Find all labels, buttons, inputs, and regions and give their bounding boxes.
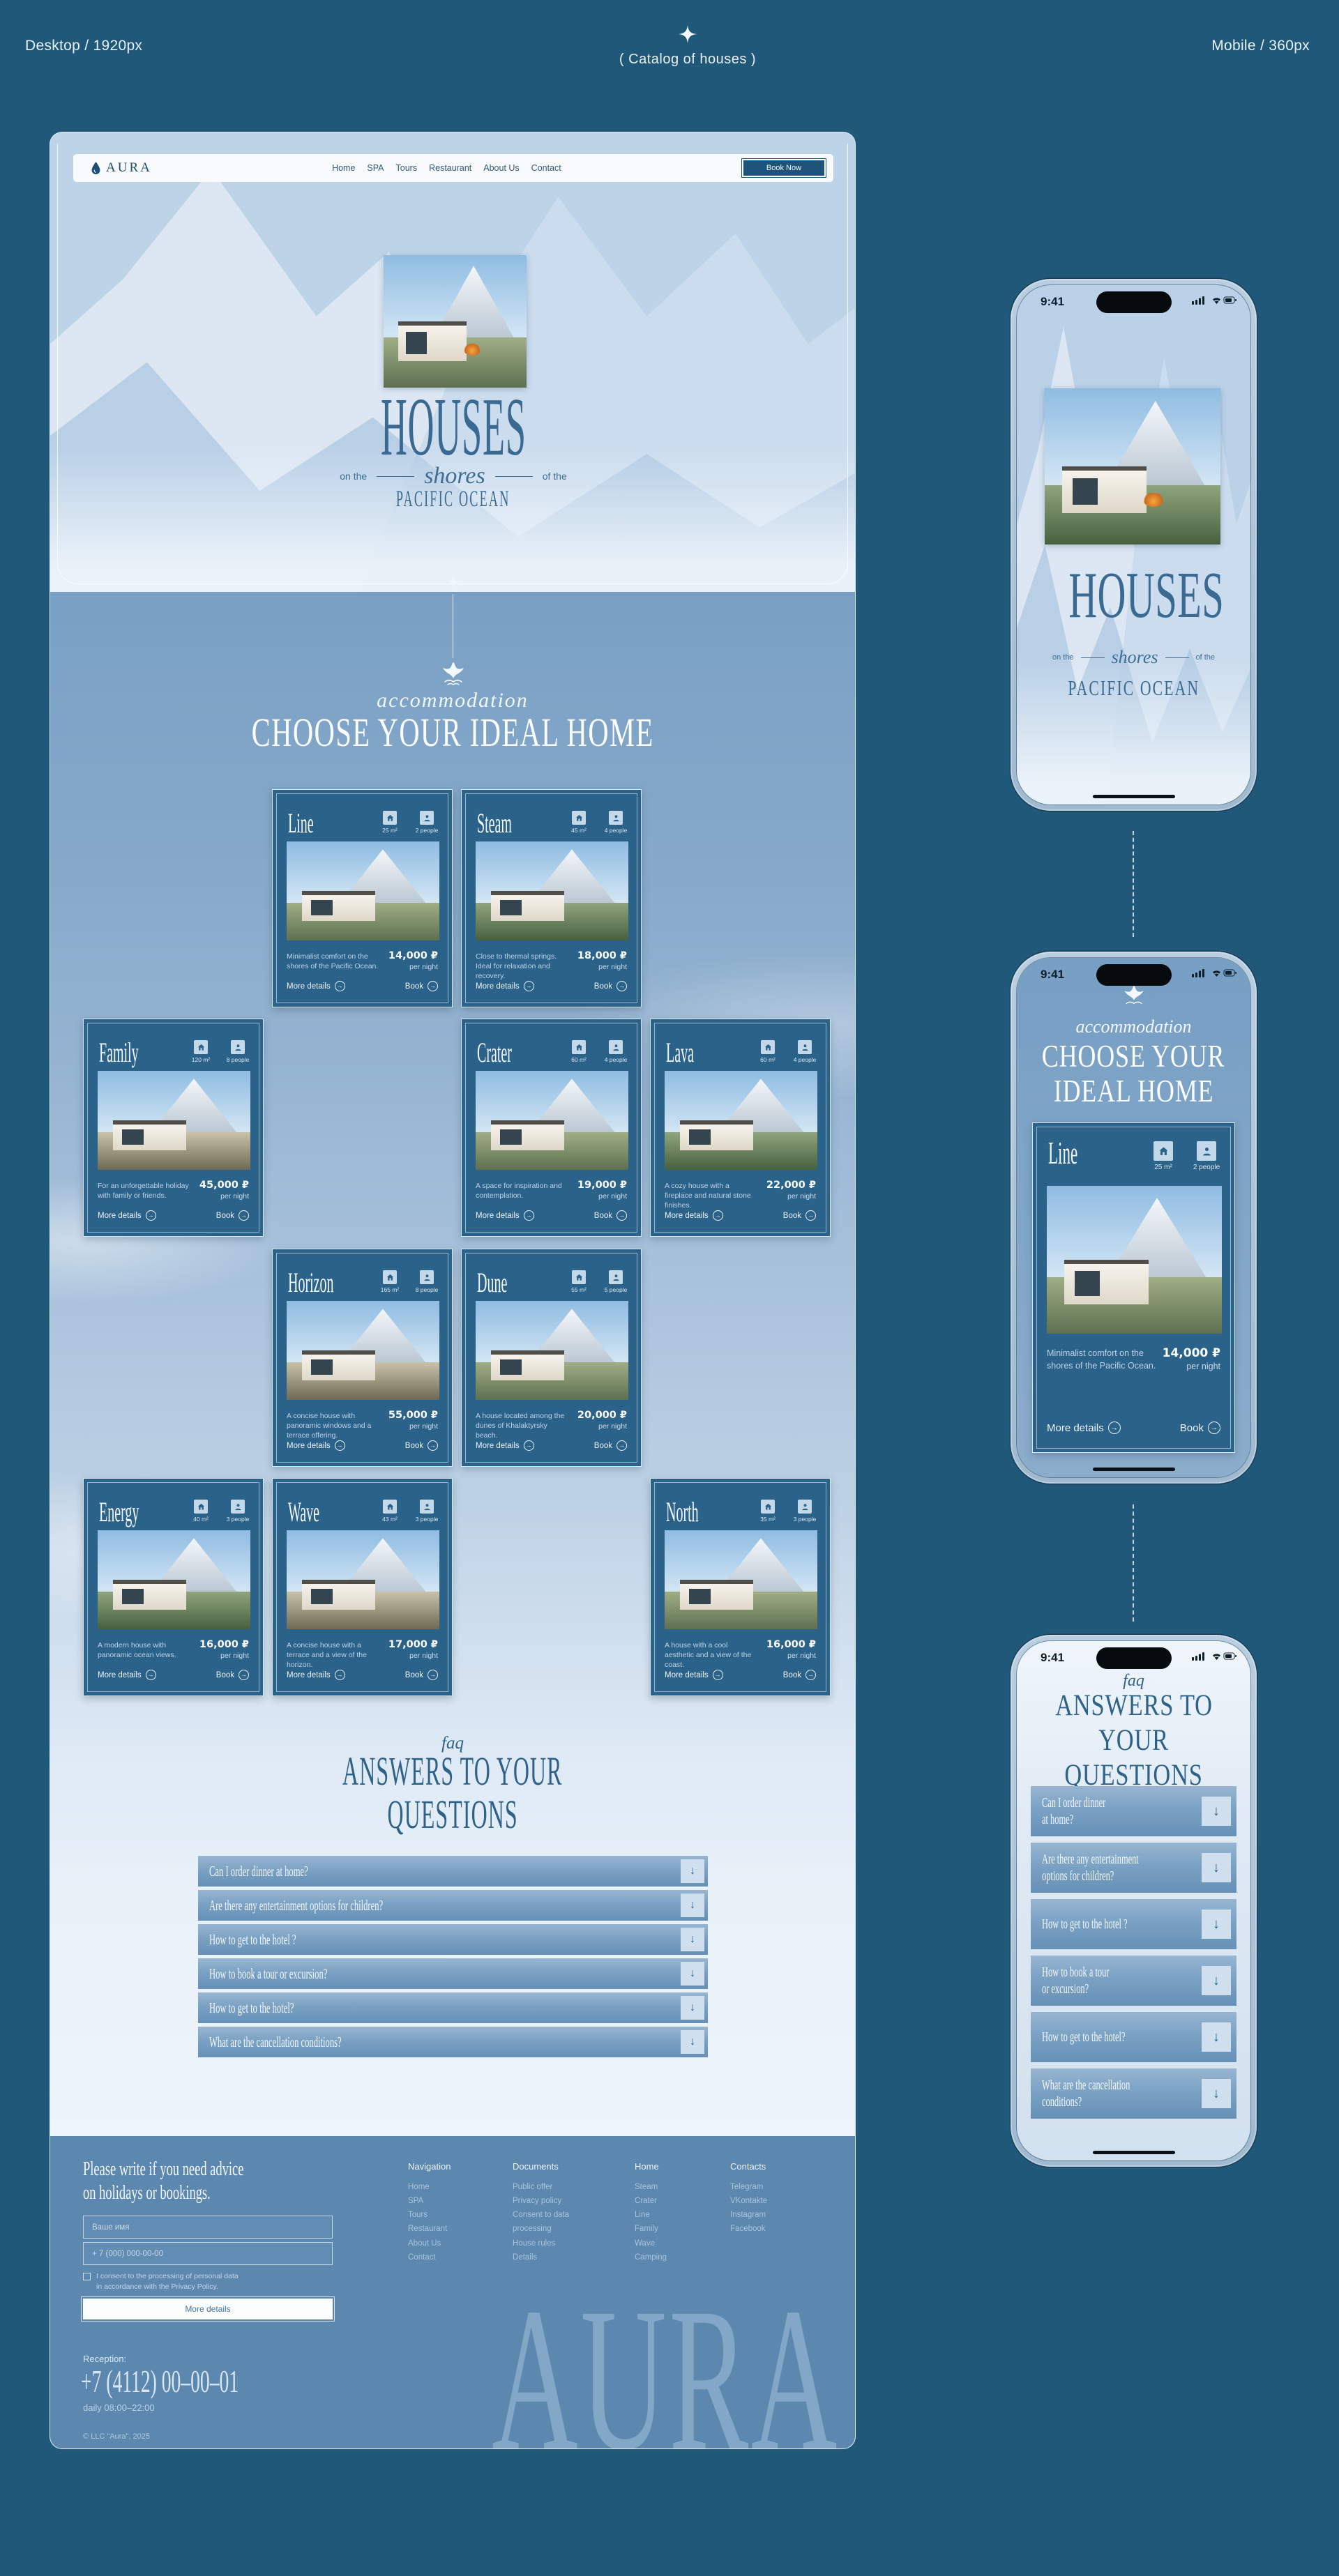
capacity-label: 3 people (411, 1516, 442, 1523)
accommodation-heading-line1: CHOOSE YOUR (1042, 1039, 1225, 1074)
footer-link-about-us[interactable]: About Us (408, 2236, 499, 2250)
faq-heading-line2: YOUR QUESTIONS (1041, 1723, 1227, 1793)
consent-line1: I consent to the processing of personal … (96, 2272, 239, 2280)
faq-question-text: Can I order dinnerat home? (1042, 1794, 1105, 1828)
accommodation-heading-line2: IDEAL HOME (1054, 1074, 1214, 1108)
name-input[interactable] (83, 2216, 333, 2239)
price-period: per night (388, 1422, 438, 1431)
arrow-circle-icon: → (146, 1670, 156, 1680)
footer-link-line[interactable]: Line (635, 2208, 725, 2222)
main-nav: HomeSPAToursRestaurantAbout UsContact (152, 163, 741, 173)
price-value: 45,000 ₽ (199, 1180, 249, 1191)
faq-item[interactable]: What are the cancellation conditions?↓ (198, 2027, 708, 2057)
watermark-text: AURA (492, 2276, 840, 2449)
house-name-text: Steam (477, 809, 512, 837)
house-name-text: Line (1048, 1137, 1077, 1169)
house-icon (761, 1040, 775, 1054)
hero-title: HOUSES (50, 386, 856, 468)
more-details-link[interactable]: More details→ (287, 981, 345, 991)
dynamic-island (1096, 1647, 1172, 1669)
footer-submit-button[interactable]: More details (83, 2299, 333, 2319)
more-details-link[interactable]: More details→ (98, 1670, 156, 1680)
footer-link-house-rules[interactable]: House rules (513, 2236, 603, 2250)
footer-link-public-offer[interactable]: Public offer (513, 2180, 603, 2194)
capacity-badge: 2 people (411, 811, 442, 834)
footer-link-facebook[interactable]: Facebook (730, 2222, 821, 2236)
house-icon (575, 1273, 584, 1282)
faq-expand-button[interactable]: ↓ (681, 1962, 704, 1986)
faq-expand-button[interactable]: ↓ (1202, 1797, 1231, 1826)
more-details-link[interactable]: More details→ (476, 981, 534, 991)
footer-link-camping[interactable]: Camping (635, 2250, 725, 2264)
book-link[interactable]: Book→ (405, 1670, 438, 1680)
arrow-down-icon: ↓ (1213, 1973, 1220, 1989)
price-block: 20,000 ₽per night (577, 1410, 627, 1431)
faq-question: How to get to the hotel? (1042, 2029, 1177, 2045)
house-name-text: Wave (288, 1498, 319, 1526)
nav-link-home[interactable]: Home (332, 163, 355, 173)
house-description: A cozy house with a fireplace and natura… (665, 1181, 757, 1211)
footer-link-wave[interactable]: Wave (635, 2236, 725, 2250)
reception-phone[interactable]: +7 (4112) 00–00–01 (81, 2364, 344, 2400)
footer-link-details[interactable]: Details (513, 2250, 603, 2264)
price-period: per night (577, 1192, 627, 1201)
footer-column-documents: DocumentsPublic offerPrivacy policyConse… (513, 2161, 603, 2264)
arrow-circle-icon: → (805, 1210, 816, 1221)
price-block: 22,000 ₽per night (766, 1180, 816, 1201)
price-period: per night (199, 1192, 249, 1201)
faq-item[interactable]: How to get to the hotel ?↓ (198, 1924, 708, 1955)
arrow-circle-icon: → (335, 981, 345, 991)
house-icon (383, 811, 397, 825)
photo-house (680, 1120, 753, 1150)
book-link[interactable]: Book→ (594, 981, 627, 991)
faq-item[interactable]: Are there any entertainmentoptions for c… (1031, 1843, 1236, 1893)
person-icon (423, 1273, 432, 1282)
faq-question: Are there any entertainmentoptions for c… (1042, 1851, 1198, 1884)
price-value: 14,000 ₽ (1163, 1346, 1220, 1360)
hero-photo (1045, 388, 1220, 544)
arrow-circle-icon: → (616, 1440, 627, 1451)
price-value: 22,000 ₽ (766, 1180, 816, 1191)
dash-ornament (377, 476, 414, 477)
nav-link-about-us[interactable]: About Us (483, 163, 519, 173)
hero-title-text: HOUSES (381, 386, 527, 468)
faq-item[interactable]: How to get to the hotel ?↓ (1031, 1899, 1236, 1949)
house-photo (287, 841, 439, 940)
hero-title-text: HOUSES (1068, 563, 1224, 628)
phone-mockup-hero: HOUSES on the shores of the PACIFIC OCEA… (1011, 279, 1257, 811)
more-details-link[interactable]: More details→ (98, 1210, 156, 1221)
price-period: per night (577, 963, 627, 971)
card-badges: 60 m²4 people (563, 1040, 631, 1063)
person-icon (798, 1500, 812, 1514)
price-block: 18,000 ₽per night (577, 950, 627, 971)
sparkle-icon (679, 24, 697, 45)
book-link[interactable]: Book→ (783, 1210, 816, 1221)
house-card-wave: Wave43 m²3 peopleA concise house with a … (272, 1478, 453, 1696)
faq-expand-button[interactable]: ↓ (681, 2030, 704, 2054)
site-header: AURA HomeSPAToursRestaurantAbout UsConta… (73, 154, 833, 182)
phone-input[interactable] (83, 2242, 333, 2265)
arrow-circle-icon: → (239, 1210, 249, 1221)
faq-expand-button[interactable]: ↓ (681, 1893, 704, 1917)
hero-sub-right: of the (1196, 653, 1216, 662)
phone-mockup-catalog: accommodation CHOOSE YOUR IDEAL HOME Lin… (1011, 952, 1257, 1484)
status-icons (1192, 968, 1236, 982)
house-name: Crater (477, 1039, 547, 1067)
status-time: 9:41 (1041, 968, 1064, 982)
hero-bottom-ornament (448, 576, 459, 592)
price-value: 16,000 ₽ (766, 1639, 816, 1650)
catalog-badge: ( Catalog of houses ) (618, 24, 757, 68)
status-bar: 9:41 (1017, 958, 1250, 990)
arrow-circle-icon: → (524, 1440, 534, 1451)
area-badge: 60 m² (563, 1040, 594, 1063)
house-name: Line (1048, 1137, 1107, 1169)
book-label: Book (1180, 1422, 1204, 1434)
more-details-label: More details (665, 1671, 709, 1679)
dynamic-island (1096, 291, 1172, 313)
arrow-circle-icon: → (616, 1210, 627, 1221)
arrow-down-icon: ↓ (1213, 2086, 1220, 2102)
house-description: A modern house with panoramic ocean view… (98, 1640, 190, 1660)
house-icon (764, 1043, 773, 1052)
photo-house (113, 1580, 186, 1610)
footer-link-contact[interactable]: Contact (408, 2250, 499, 2264)
footer-column-contacts: ContactsTelegramVKontakteInstagramFacebo… (730, 2161, 821, 2236)
area-label: 120 m² (186, 1056, 216, 1063)
faq-item[interactable]: Can I order dinnerat home?↓ (1031, 1786, 1236, 1836)
faq-question: How to book a touror excursion? (1042, 1964, 1151, 1997)
accommodation-heading: CHOOSE YOUR IDEAL HOME (50, 712, 855, 753)
book-label: Book (783, 1212, 801, 1220)
arrow-circle-icon: → (428, 1670, 438, 1680)
faq-expand-button[interactable]: ↓ (681, 1859, 704, 1883)
footer-column-title: Navigation (408, 2161, 499, 2172)
nav-link-restaurant[interactable]: Restaurant (429, 163, 471, 173)
capacity-badge: 3 people (222, 1500, 253, 1523)
phone-screen: faq ANSWERS TO YOUR QUESTIONS Can I orde… (1017, 1641, 1250, 2160)
book-link[interactable]: Book→ (594, 1440, 627, 1451)
price-block: 17,000 ₽per night (388, 1639, 438, 1660)
footer-link-telegram[interactable]: Telegram (730, 2180, 821, 2194)
person-icon (609, 1040, 623, 1054)
desktop-size-label: Desktop / 1920px (25, 38, 142, 54)
capacity-badge: 4 people (600, 811, 631, 834)
faq-item[interactable]: What are the cancellationconditions?↓ (1031, 2068, 1236, 2119)
mobile-size-label: Mobile / 360px (1211, 38, 1310, 54)
faq-question: How to get to the hotel ? (209, 1933, 354, 1947)
faq-expand-button[interactable]: ↓ (681, 1996, 704, 2020)
house-card-lava: Lava60 m²4 peopleA cozy house with a fir… (650, 1019, 831, 1237)
faq-question: How to get to the hotel? (209, 2001, 350, 2015)
faq-question: Can I order dinnerat home? (1042, 1794, 1144, 1828)
reception-phone-text: +7 (4112) 00–00–01 (81, 2364, 239, 2400)
book-label: Book (405, 982, 423, 991)
status-bar: 9:41 (1017, 1641, 1250, 1673)
copyright: © LLC "Aura", 2025 (83, 2432, 150, 2441)
desktop-mockup: HOUSES on the shores of the PACIFIC OCEA… (50, 132, 856, 2449)
arrow-down-icon: ↓ (1213, 1804, 1220, 1820)
house-description: A concise house with a terrace and a vie… (287, 1640, 379, 1670)
footer-link-instagram[interactable]: Instagram (730, 2208, 821, 2222)
house-photo (287, 1530, 439, 1629)
faq-item[interactable]: Are there any entertainment options for … (198, 1890, 708, 1921)
nav-link-tours[interactable]: Tours (396, 163, 418, 173)
accommodation-eyebrow: accommodation (50, 689, 855, 712)
hero-subtitle-text: PACIFIC OCEAN (1068, 676, 1200, 701)
house-description: A house located among the dunes of Khala… (476, 1411, 568, 1441)
faq-expand-button[interactable]: ↓ (1202, 2022, 1231, 2052)
more-details-link[interactable]: More details→ (1047, 1422, 1121, 1434)
faq-item[interactable]: Can I order dinner at home?↓ (198, 1856, 708, 1887)
person-icon (420, 1270, 434, 1284)
faq-question: What are the cancellation conditions? (209, 2035, 430, 2050)
capacity-badge: 3 people (411, 1500, 442, 1523)
faq-question-text: How to get to the hotel ? (209, 1933, 296, 1947)
card-badges: 165 m²8 people (375, 1270, 442, 1293)
faq-expand-button[interactable]: ↓ (1202, 1853, 1231, 1882)
book-link[interactable]: Book→ (405, 981, 438, 991)
person-icon (1197, 1141, 1216, 1161)
price-block: 19,000 ₽per night (577, 1180, 627, 1201)
arrow-circle-icon: → (335, 1440, 345, 1451)
house-name: Energy (99, 1498, 179, 1526)
dash-ornament (495, 476, 533, 477)
book-link[interactable]: Book→ (783, 1670, 816, 1680)
photo-house (491, 891, 564, 921)
house-icon (575, 814, 584, 823)
faq-expand-button[interactable]: ↓ (1202, 1966, 1231, 1995)
faq-question-text: How to get to the hotel ? (1042, 1916, 1128, 1933)
house-icon (194, 1040, 208, 1054)
person-icon (420, 811, 434, 825)
faq-list: Can I order dinnerat home?↓Are there any… (1031, 1786, 1236, 2125)
card-badges: 35 m²3 people (752, 1500, 820, 1523)
house-name: Lava (666, 1039, 722, 1067)
house-photo (476, 841, 628, 940)
card-badges: 25 m²2 people (375, 811, 442, 834)
faq-item[interactable]: How to book a touror excursion?↓ (1031, 1956, 1236, 2006)
consent-checkbox[interactable] (83, 2273, 91, 2280)
price-period: per night (577, 1422, 627, 1431)
photo-house (302, 1580, 375, 1610)
house-photo (665, 1071, 817, 1170)
brand-name: AURA (106, 160, 152, 176)
footer-link-vkontakte[interactable]: VKontakte (730, 2194, 821, 2208)
phone-mockup-faq: faq ANSWERS TO YOUR QUESTIONS Can I orde… (1011, 1635, 1257, 2167)
house-description: A space for inspiration and contemplatio… (476, 1181, 568, 1201)
capacity-badge: 8 people (411, 1270, 442, 1293)
house-card-crater: Crater60 m²4 peopleA space for inspirati… (461, 1019, 642, 1237)
footer-column-navigation: NavigationHomeSPAToursRestaurantAbout Us… (408, 2161, 499, 2264)
hero-sub-right: of the (543, 471, 567, 482)
person-icon (423, 814, 432, 823)
faq-expand-button[interactable]: ↓ (1202, 2079, 1231, 2108)
house-name-text: Dune (477, 1269, 507, 1297)
book-link[interactable]: Book→ (216, 1210, 249, 1221)
more-details-label: More details (287, 1671, 331, 1679)
more-details-label: More details (287, 982, 331, 991)
home-indicator[interactable] (1093, 2151, 1175, 2154)
area-badge: 25 m² (375, 811, 405, 834)
home-indicator[interactable] (1093, 1468, 1175, 1471)
footer-link-crater[interactable]: Crater (635, 2194, 725, 2208)
more-details-link[interactable]: More details→ (665, 1670, 723, 1680)
faq-expand-button[interactable]: ↓ (681, 1928, 704, 1951)
footer-link-tours[interactable]: Tours (408, 2208, 499, 2222)
footer-link-home[interactable]: Home (408, 2180, 499, 2194)
capacity-label: 5 people (600, 1286, 631, 1293)
area-badge: 45 m² (563, 811, 594, 834)
capacity-label: 2 people (1188, 1164, 1225, 1171)
house-name: Steam (477, 809, 547, 837)
more-details-label: More details (665, 1212, 709, 1220)
card-badges: 43 m²3 people (375, 1500, 442, 1523)
footer-heading-line2: on holidays or bookings. (83, 2181, 211, 2205)
status-icons (1192, 296, 1236, 309)
arrow-circle-icon: → (239, 1670, 249, 1680)
book-now-button[interactable]: Book Now (741, 158, 826, 178)
more-details-label: More details (476, 1212, 520, 1220)
area-label: 165 m² (375, 1286, 405, 1293)
house-icon (386, 1502, 395, 1511)
hero-sub-script: shores (1112, 647, 1158, 668)
faq-heading-line1: ANSWERS TO (1055, 1689, 1213, 1723)
house-name-text: North (666, 1498, 699, 1526)
accommodation-heading: CHOOSE YOUR IDEAL HOME (1017, 1039, 1250, 1108)
footer-link-consent-to-data-processing[interactable]: Consent to data processing (513, 2208, 603, 2236)
book-link[interactable]: Book→ (405, 1440, 438, 1451)
footer-link-privacy-policy[interactable]: Privacy policy (513, 2194, 603, 2208)
faq-question-text: How to get to the hotel? (1042, 2029, 1125, 2045)
house-icon (572, 1040, 586, 1054)
card-badges: 60 m²4 people (752, 1040, 820, 1063)
book-link[interactable]: Book→ (1180, 1422, 1220, 1434)
person-icon (1201, 1145, 1213, 1157)
hero-subtitle: PACIFIC OCEAN (1017, 676, 1250, 701)
capacity-label: 4 people (600, 1056, 631, 1063)
status-time: 9:41 (1041, 295, 1064, 309)
book-link[interactable]: Book→ (594, 1210, 627, 1221)
more-details-link[interactable]: More details→ (476, 1440, 534, 1451)
area-label: 25 m² (375, 827, 405, 834)
price-value: 16,000 ₽ (199, 1639, 249, 1650)
house-card-dune: Dune55 m²5 peopleA house located among t… (461, 1249, 642, 1467)
dash-ornament (1081, 657, 1105, 658)
area-label: 43 m² (375, 1516, 405, 1523)
capacity-badge: 5 people (600, 1270, 631, 1293)
card-badges: 45 m²4 people (563, 811, 631, 834)
footer-link-restaurant[interactable]: Restaurant (408, 2222, 499, 2236)
area-label: 60 m² (752, 1056, 783, 1063)
price-block: 45,000 ₽per night (199, 1180, 249, 1201)
house-icon (764, 1502, 773, 1511)
footer-link-steam[interactable]: Steam (635, 2180, 725, 2194)
person-icon (231, 1040, 245, 1054)
more-details-link[interactable]: More details→ (665, 1210, 723, 1221)
person-icon (612, 814, 621, 823)
consent-label: I consent to the processing of personal … (96, 2271, 239, 2292)
book-link[interactable]: Book→ (216, 1670, 249, 1680)
water-drop-icon (90, 161, 102, 176)
faq-item[interactable]: How to book a tour or excursion?↓ (198, 1958, 708, 1989)
price-value: 20,000 ₽ (577, 1410, 627, 1421)
footer-link-family[interactable]: Family (635, 2222, 725, 2236)
house-icon (383, 1500, 397, 1514)
book-label: Book (594, 982, 612, 991)
brand-logo[interactable]: AURA (90, 160, 152, 176)
area-badge: 43 m² (375, 1500, 405, 1523)
nav-link-contact[interactable]: Contact (531, 163, 561, 173)
status-bar: 9:41 (1017, 285, 1250, 317)
more-details-link[interactable]: More details→ (476, 1210, 534, 1221)
status-icons (1192, 1652, 1236, 1665)
capacity-label: 8 people (411, 1286, 442, 1293)
house-name: North (666, 1498, 731, 1526)
card-badges: 40 m²3 people (186, 1500, 253, 1523)
person-icon (423, 1502, 432, 1511)
house-icon (572, 811, 586, 825)
price-block: 55,000 ₽per night (388, 1410, 438, 1431)
price-value: 55,000 ₽ (388, 1410, 438, 1421)
more-details-link[interactable]: More details→ (287, 1670, 345, 1680)
more-details-label: More details (98, 1212, 142, 1220)
house-description: A house with a cool aesthetic and a view… (665, 1640, 757, 1670)
photo-house (1062, 466, 1147, 513)
whale-tail-icon (438, 660, 469, 687)
footer-column-title: Contacts (730, 2161, 821, 2172)
footer: Please write if you need advice on holid… (50, 2136, 856, 2449)
home-indicator[interactable] (1093, 795, 1175, 798)
faq-heading-line1: ANSWERS TO YOUR (342, 1750, 562, 1793)
faq-question-text: How to book a tour or excursion? (209, 1967, 327, 1981)
house-photo (98, 1530, 250, 1629)
more-details-link[interactable]: More details→ (287, 1440, 345, 1451)
hero-subtitle-text: PACIFIC OCEAN (396, 487, 510, 512)
status-time: 9:41 (1041, 1651, 1064, 1665)
faq-item[interactable]: How to get to the hotel?↓ (198, 1992, 708, 2023)
footer-link-spa[interactable]: SPA (408, 2194, 499, 2208)
capacity-label: 8 people (222, 1056, 253, 1063)
hero-subline: on the shores of the (50, 466, 856, 487)
faq-question: What are the cancellationconditions? (1042, 2077, 1184, 2110)
faq-expand-button[interactable]: ↓ (1202, 1910, 1231, 1939)
faq-question-text: How to book a touror excursion? (1042, 1964, 1109, 1997)
capacity-label: 4 people (600, 827, 631, 834)
house-icon (386, 814, 395, 823)
price-block: 16,000 ₽per night (199, 1639, 249, 1660)
faq-item[interactable]: How to get to the hotel?↓ (1031, 2012, 1236, 2062)
arrow-down-icon: ↓ (690, 2002, 695, 2014)
house-icon (386, 1273, 395, 1282)
hero-sub-script: shores (424, 463, 485, 489)
price-period: per night (766, 1192, 816, 1201)
price-value: 17,000 ₽ (388, 1639, 438, 1650)
faq-question-text: Are there any entertainment options for … (209, 1898, 383, 1913)
nav-link-spa[interactable]: SPA (367, 163, 384, 173)
faq-question-text: How to get to the hotel? (209, 2001, 294, 2015)
house-name-text: Lava (666, 1039, 694, 1067)
reception-hours: daily 08:00–22:00 (83, 2402, 155, 2413)
more-details-label: More details (287, 1442, 331, 1450)
status-icons-art (1192, 296, 1236, 305)
price-block: 14,000 ₽per night (1163, 1346, 1220, 1371)
area-label: 45 m² (563, 827, 594, 834)
arrow-circle-icon: → (428, 981, 438, 991)
book-label: Book (216, 1671, 234, 1679)
